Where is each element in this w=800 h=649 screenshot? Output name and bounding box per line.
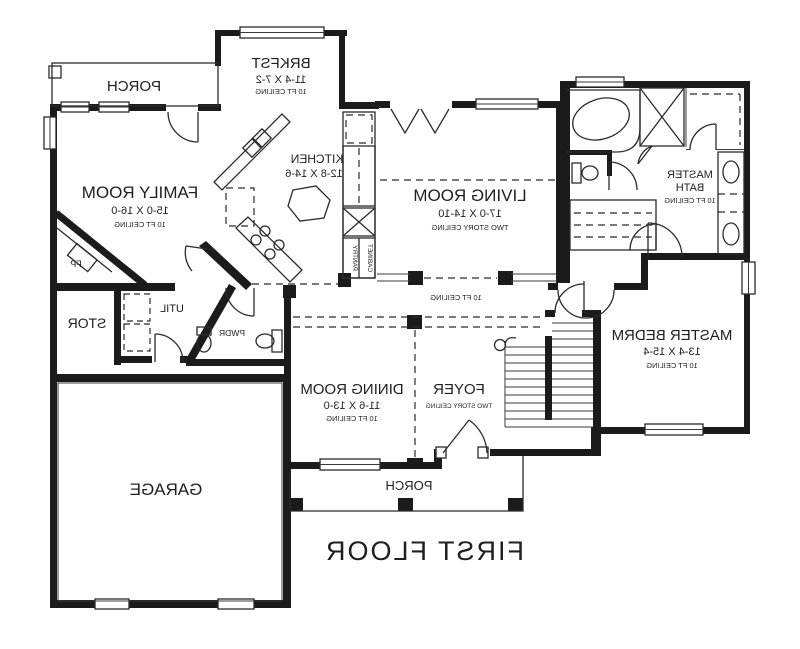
vanity	[718, 152, 744, 254]
window	[44, 117, 56, 149]
room-dims-living: 17-0 X 14-10	[438, 208, 502, 220]
fireplace-label: FP	[70, 259, 82, 269]
window	[742, 262, 755, 294]
pwdr-sink	[256, 330, 282, 352]
vanity-sink	[723, 223, 739, 245]
linen-closet	[570, 200, 656, 250]
staircase	[495, 323, 594, 427]
master-bath-fixtures	[566, 88, 744, 254]
cabinet-label: CABINET	[366, 244, 373, 272]
room-ceiling-dining: 10 FT CEILING	[326, 414, 378, 423]
room-label-master-bedrm: MASTER BEDRM	[612, 327, 733, 344]
toilet	[572, 163, 598, 183]
room-ceiling-master-bath: 10 FT CEILING	[664, 196, 716, 205]
room-ceiling-foyer: TWO STORY CEILING	[426, 403, 493, 410]
vanity-sink	[723, 161, 739, 183]
room-dims-master-bedrm: 13-4 X 15-4	[643, 346, 700, 358]
room-ceiling-living: TWO STORY CEILING	[431, 223, 508, 232]
exterior-walls	[50, 30, 750, 608]
kitchen-island	[288, 186, 330, 221]
window	[240, 27, 324, 38]
room-label-garage: GARAGE	[130, 480, 203, 499]
window	[320, 459, 380, 470]
room-label-master-bath-2: BATH	[676, 182, 705, 194]
window	[99, 102, 129, 112]
room-label-stor: STOR	[68, 315, 107, 331]
hall-railings	[252, 180, 557, 458]
kitchen-fixtures	[214, 114, 330, 282]
kitchen-counter	[214, 114, 290, 190]
room-label-porch-top: PORCH	[107, 78, 161, 95]
room-ceiling-brkfst: 10 FT CEILING	[255, 87, 307, 96]
room-label-living: LIVING ROOM	[413, 186, 526, 205]
room-ceiling-family: 10 FT CEILING	[114, 220, 166, 229]
hall-ceiling-note: 10 FT CEILING	[430, 293, 482, 302]
floor-plan-drawing: PORCH BRKFST 11-4 X 7-2 10 FT CEILING FA…	[0, 0, 800, 649]
room-ceiling-master-bedrm: 10 FT CEILING	[646, 361, 698, 370]
room-labels: PORCH BRKFST 11-4 X 7-2 10 FT CEILING FA…	[68, 55, 733, 566]
tub-platform	[566, 90, 640, 152]
shower	[638, 88, 684, 164]
room-dims-kitchen: 12-8 X 14-6	[285, 168, 342, 180]
cooktop-burners	[251, 226, 284, 259]
room-label-family: FAMILY ROOM	[82, 183, 199, 202]
room-label-pwdr: PWDR	[219, 328, 245, 338]
room-label-porch-bottom: PORCH	[386, 478, 433, 493]
floor-plan-page: PORCH BRKFST 11-4 X 7-2 10 FT CEILING FA…	[0, 0, 800, 649]
window	[61, 102, 89, 112]
overhead-cabinets	[226, 188, 254, 226]
room-label-foyer: FOYER	[433, 381, 485, 398]
room-label-master-bath-1: MASTER	[667, 169, 713, 181]
pantry-label: PANTRY	[351, 244, 358, 270]
tub	[567, 91, 635, 147]
washer	[124, 294, 150, 321]
walk-in-closet	[686, 88, 740, 147]
room-dims-family: 15-0 X 16-0	[111, 205, 168, 217]
stair-treads-left	[505, 347, 545, 419]
dryer	[124, 324, 150, 351]
stair-treads-right	[552, 323, 593, 419]
window	[476, 99, 538, 109]
room-label-dining: DINING ROOM	[300, 381, 403, 398]
room-dims-dining: 11-6 X 13-0	[324, 400, 381, 412]
plan-title: FIRST FLOOR	[324, 536, 524, 566]
room-label-brkfst: BRKFST	[251, 55, 310, 72]
room-label-kitchen: KITCHEN	[291, 152, 344, 166]
room-label-util: UTIL	[160, 303, 184, 315]
window	[576, 77, 624, 87]
window	[645, 424, 703, 435]
room-dims-brkfst: 11-4 X 7-2	[256, 74, 307, 86]
windows	[44, 27, 755, 609]
